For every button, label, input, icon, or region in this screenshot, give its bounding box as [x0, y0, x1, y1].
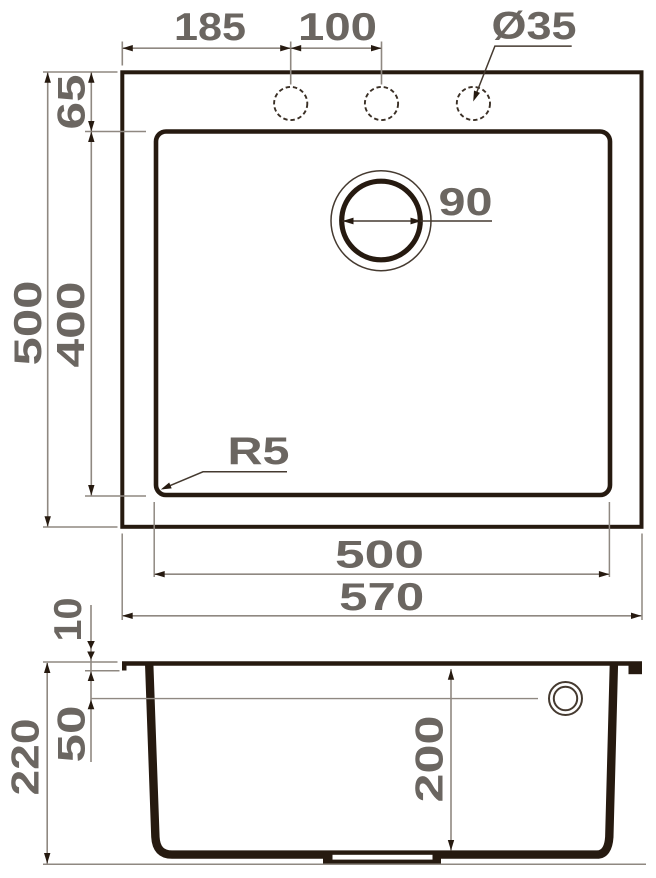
svg-text:185: 185	[174, 6, 246, 49]
svg-text:Ø35: Ø35	[492, 5, 577, 48]
svg-text:200: 200	[409, 716, 452, 803]
svg-text:10: 10	[47, 598, 90, 642]
svg-text:220: 220	[5, 719, 48, 796]
svg-text:570: 570	[339, 576, 424, 619]
svg-text:500: 500	[7, 281, 50, 366]
svg-text:65: 65	[51, 75, 94, 130]
svg-text:50: 50	[51, 706, 94, 763]
svg-text:100: 100	[298, 6, 377, 49]
svg-text:R5: R5	[228, 430, 290, 473]
svg-text:500: 500	[335, 534, 424, 577]
svg-text:400: 400	[50, 282, 93, 368]
svg-text:90: 90	[439, 181, 493, 224]
